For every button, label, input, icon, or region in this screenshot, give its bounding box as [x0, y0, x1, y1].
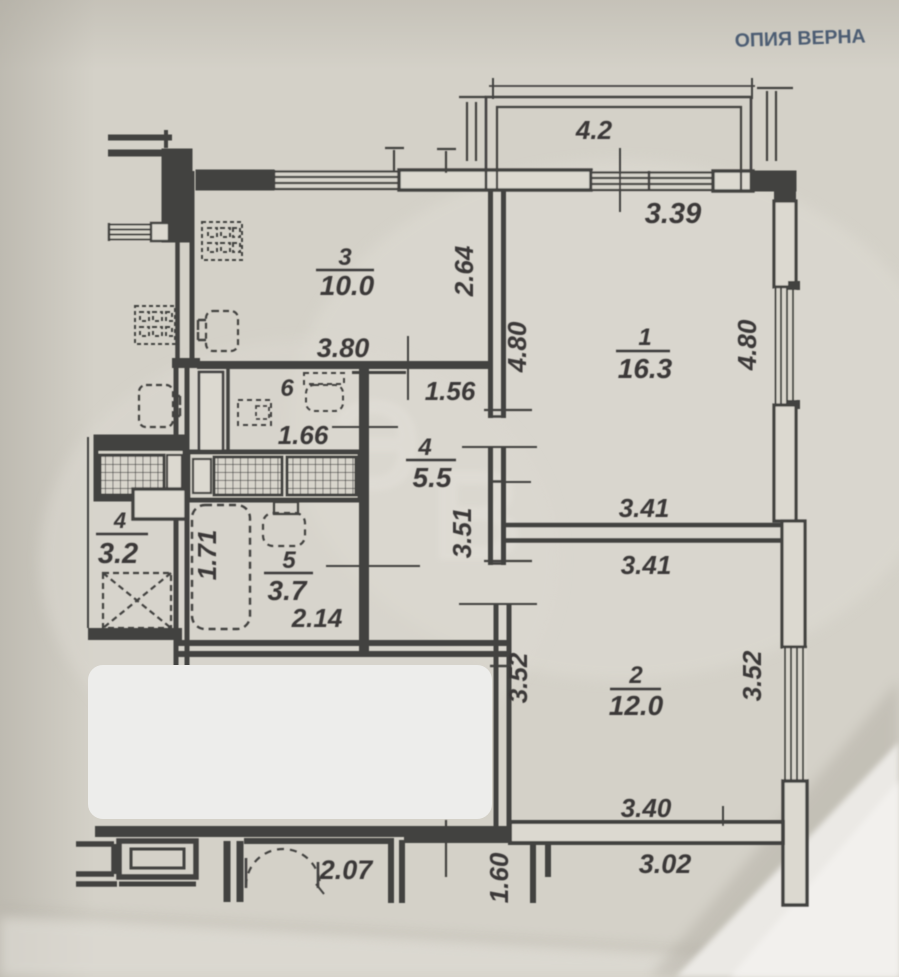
- svg-text:3: 3: [338, 244, 352, 271]
- svg-text:16.3: 16.3: [618, 353, 673, 384]
- svg-text:3.02: 3.02: [639, 849, 692, 879]
- svg-text:4.80: 4.80: [502, 321, 532, 373]
- svg-text:3.2: 3.2: [98, 538, 138, 570]
- svg-text:5.5: 5.5: [413, 462, 452, 493]
- svg-text:5: 5: [282, 547, 296, 574]
- svg-text:3.52: 3.52: [503, 652, 533, 703]
- svg-text:10.0: 10.0: [320, 270, 375, 301]
- svg-text:3.39: 3.39: [645, 198, 701, 230]
- svg-text:4.80: 4.80: [732, 319, 762, 371]
- svg-text:2.07: 2.07: [319, 855, 375, 885]
- svg-text:1.71: 1.71: [192, 530, 222, 581]
- svg-text:4.2: 4.2: [575, 115, 613, 145]
- svg-text:3.52: 3.52: [737, 650, 767, 701]
- svg-text:4: 4: [417, 434, 431, 461]
- svg-text:2: 2: [628, 662, 643, 689]
- svg-text:4: 4: [113, 508, 126, 533]
- svg-text:2.64: 2.64: [449, 245, 479, 297]
- svg-text:3.51: 3.51: [447, 508, 477, 559]
- svg-text:3.41: 3.41: [619, 493, 670, 523]
- svg-text:3.80: 3.80: [317, 333, 370, 363]
- svg-text:1: 1: [638, 324, 651, 351]
- svg-text:1.66: 1.66: [278, 420, 329, 450]
- svg-text:3.41: 3.41: [621, 550, 672, 580]
- svg-text:3.40: 3.40: [621, 793, 672, 823]
- svg-text:3.7: 3.7: [268, 575, 308, 606]
- svg-text:2.14: 2.14: [291, 603, 343, 633]
- svg-text:1.56: 1.56: [425, 376, 476, 406]
- svg-text:12.0: 12.0: [609, 690, 664, 721]
- svg-text:6: 6: [280, 375, 294, 402]
- svg-text:ОПИЯ ВЕРНА: ОПИЯ ВЕРНА: [734, 25, 866, 52]
- svg-text:1.60: 1.60: [484, 852, 514, 903]
